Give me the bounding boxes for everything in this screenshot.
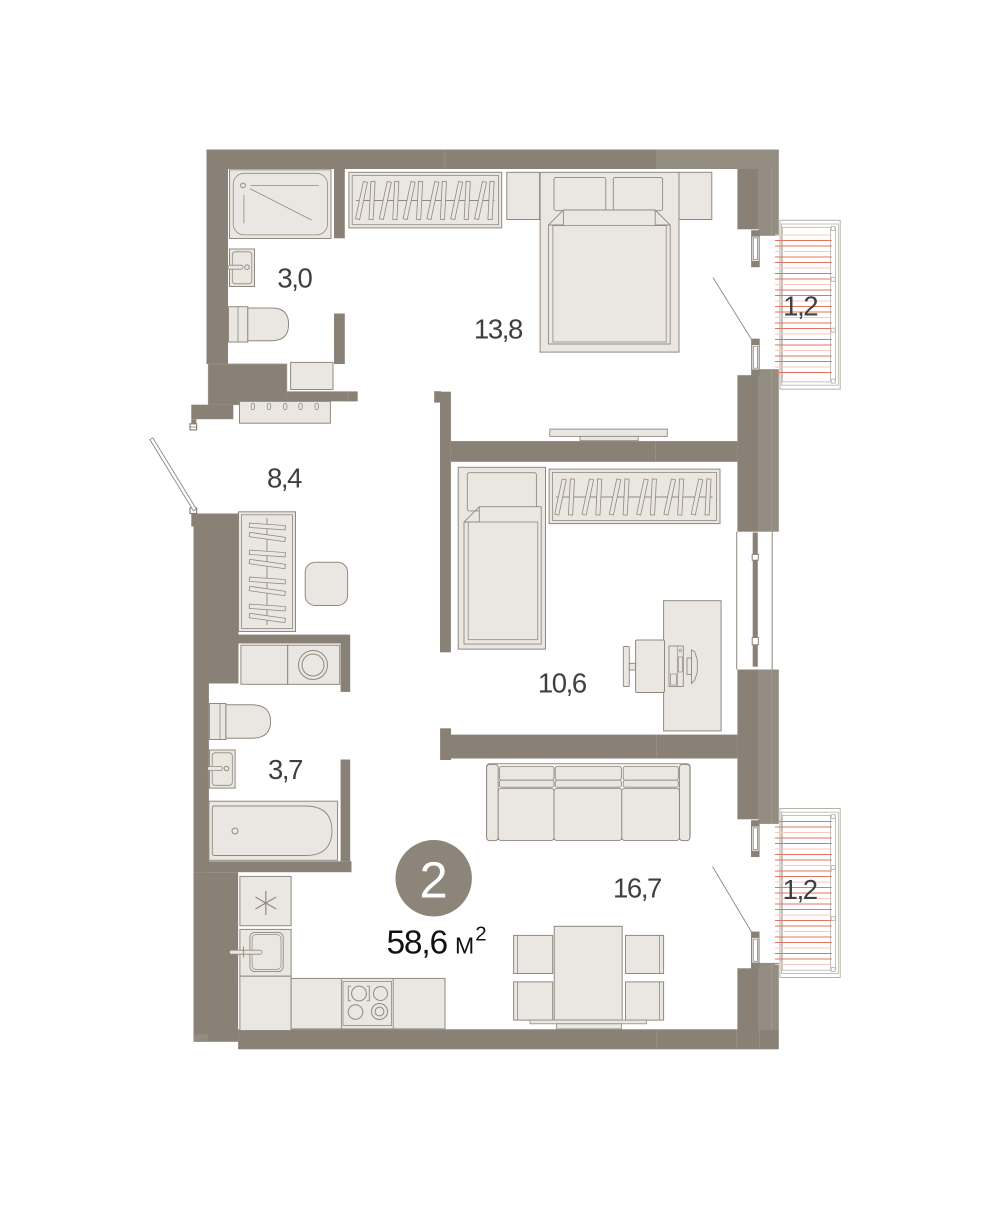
svg-text:58,6: 58,6 [387, 925, 448, 962]
svg-text:3,0: 3,0 [277, 263, 312, 294]
svg-text:10,6: 10,6 [538, 668, 587, 699]
svg-text:1,2: 1,2 [783, 291, 817, 322]
svg-text:3,7: 3,7 [268, 754, 302, 785]
svg-text:2: 2 [419, 852, 447, 909]
svg-text:16,7: 16,7 [613, 873, 661, 904]
svg-text:М: М [455, 933, 474, 959]
svg-text:8,4: 8,4 [267, 463, 302, 494]
svg-text:13,8: 13,8 [474, 314, 523, 345]
svg-text:2: 2 [475, 923, 486, 946]
svg-text:1,2: 1,2 [783, 874, 817, 905]
